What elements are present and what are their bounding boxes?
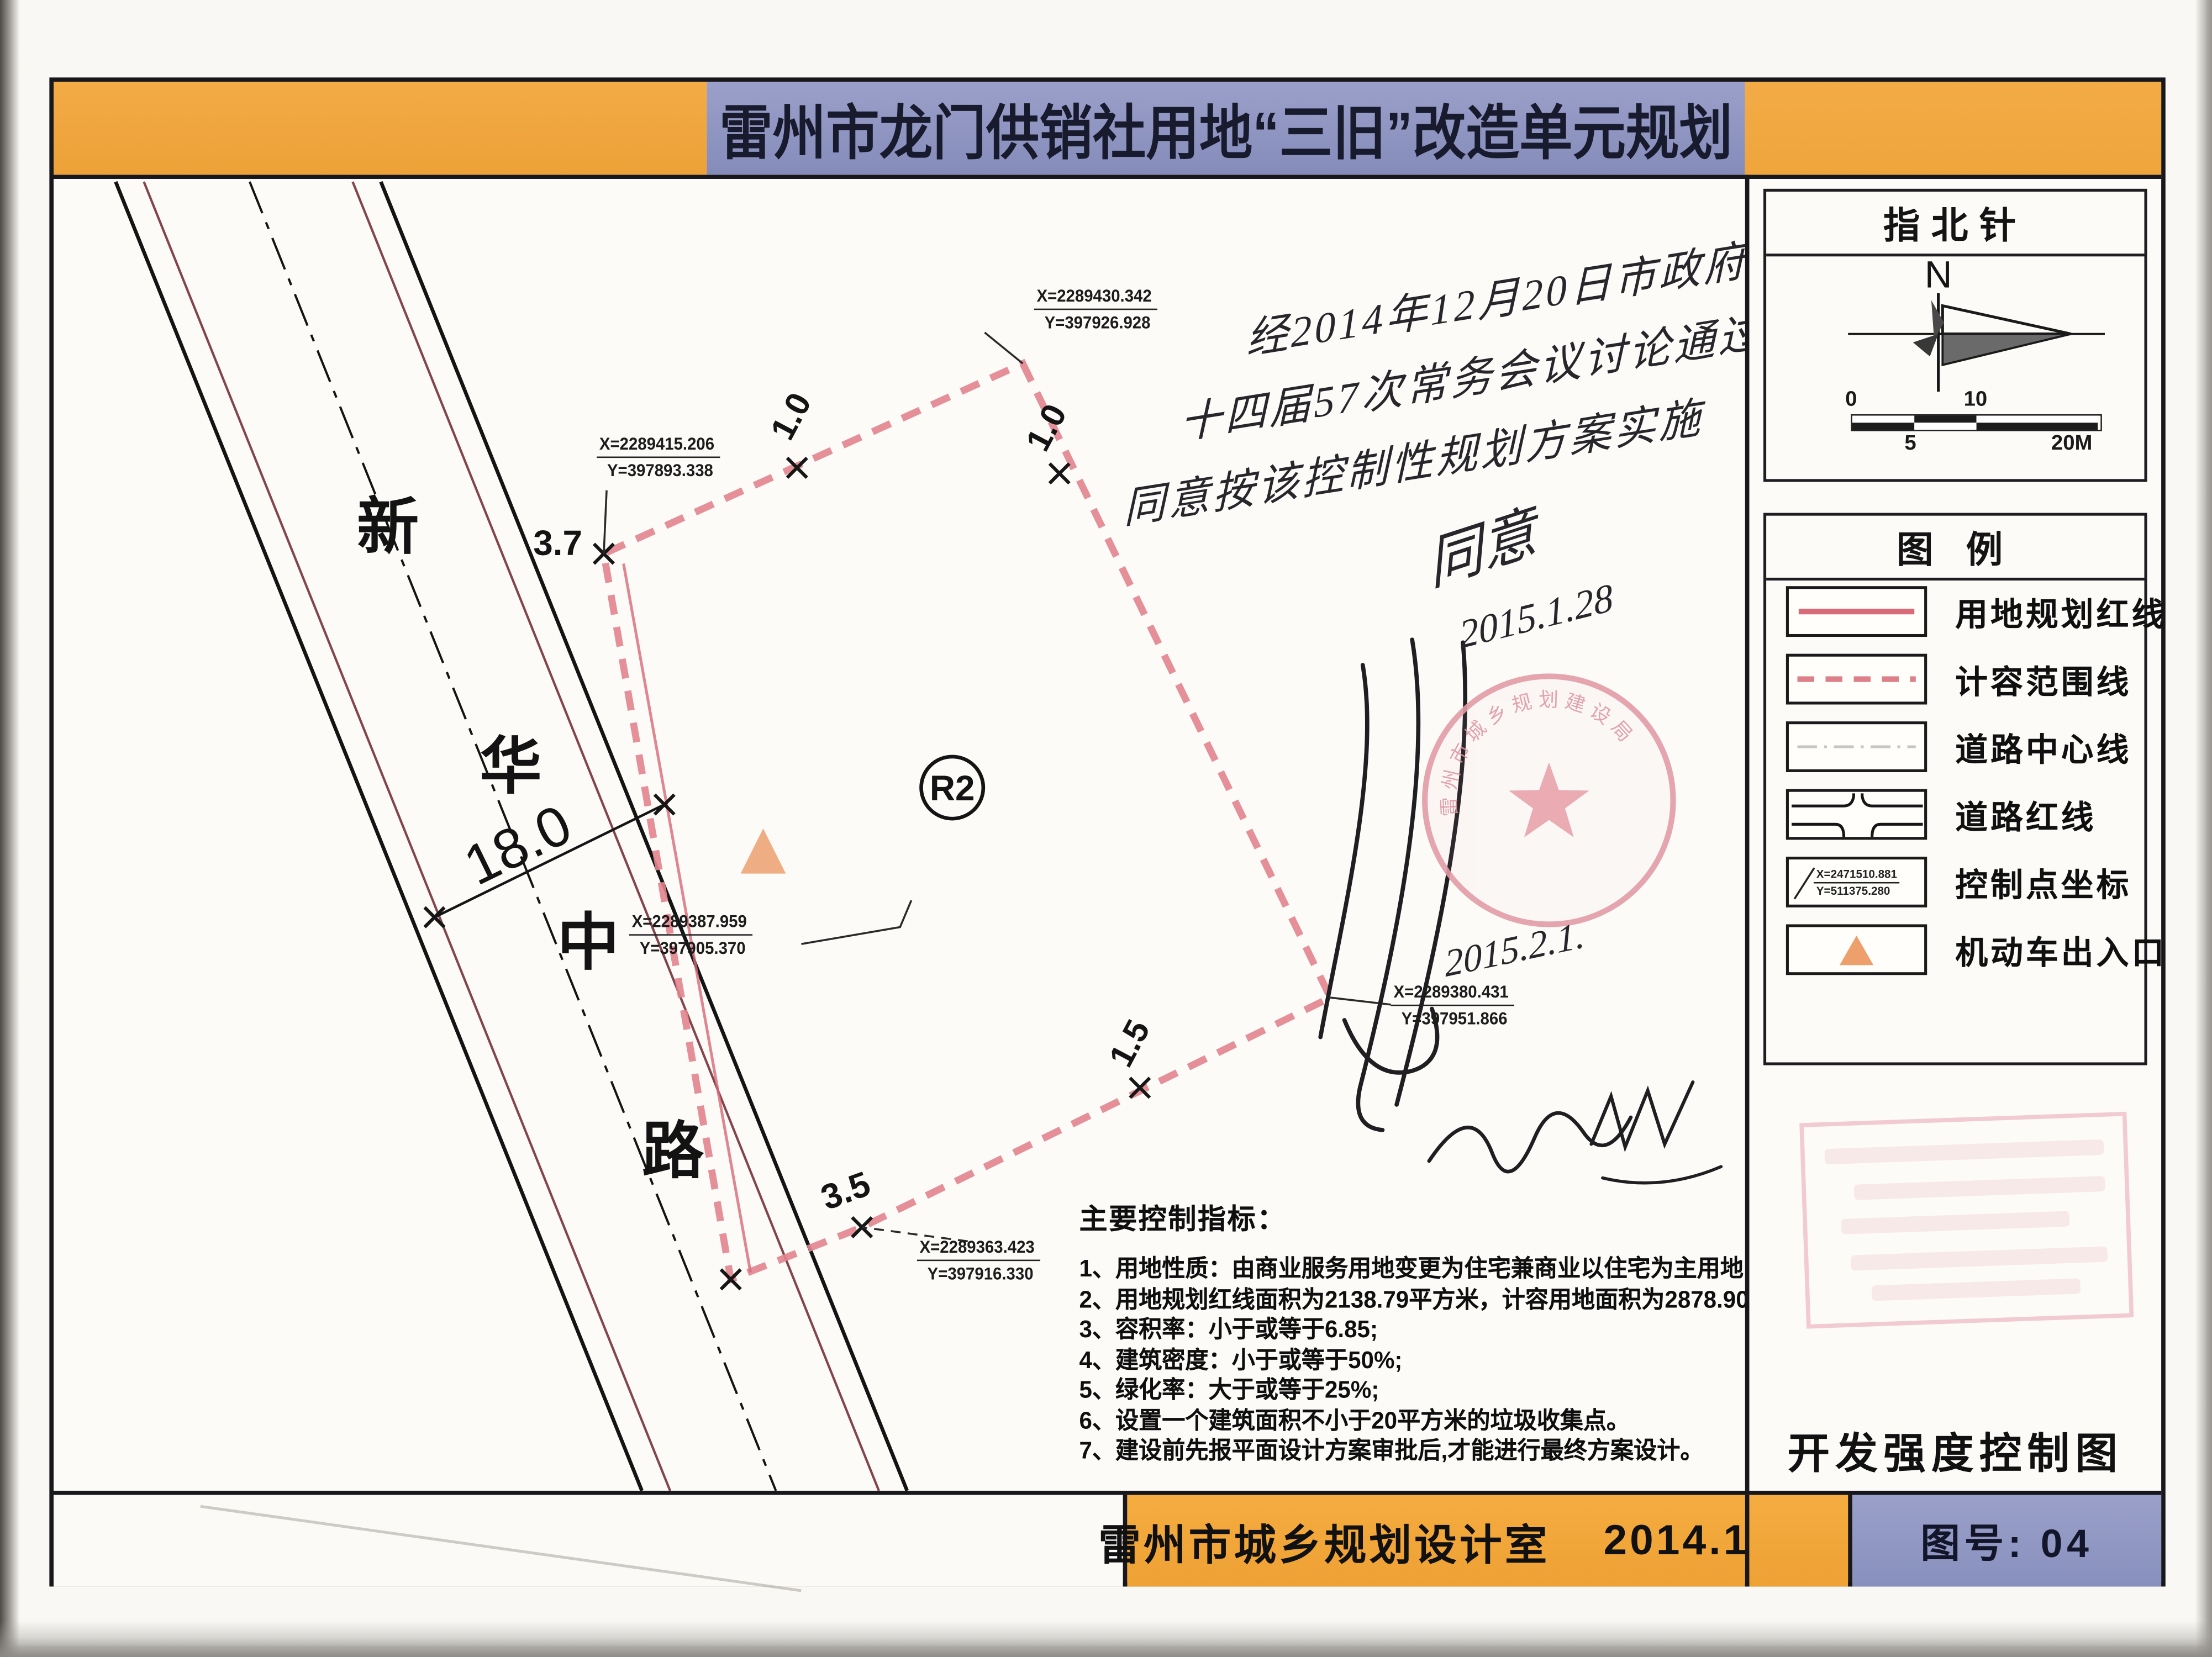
coord-label-left: X=2289415.206 Y=397893.338	[597, 432, 719, 483]
legend-item-road-centerline: 道路中心线	[1766, 713, 2144, 780]
coord-center-x: X=2289387.959	[629, 910, 752, 936]
coord-label-right: X=2289380.431 Y=397951.866	[1391, 980, 1514, 1031]
north-arrow-panel: 指北针 N 0 10 5 20M	[1763, 189, 2147, 482]
legend-coord-y: Y=511375.280	[1814, 883, 1900, 898]
coord-right-y: Y=397951.866	[1391, 1006, 1514, 1031]
redline-symbol-icon	[1786, 586, 1927, 637]
sheet-number: 图号: 04	[1920, 1512, 2093, 1569]
title-banner-orange-right	[1745, 82, 2161, 175]
indicator-item: 1、用地性质：由商业服务用地变更为住宅兼商业以住宅为主用地;	[1079, 1254, 1730, 1284]
credit-banner: 雷州市城乡规划设计室 2014.11	[1123, 1495, 1745, 1587]
survey-ticks	[425, 458, 1150, 1289]
coord-label-bottom: X=2289363.423 Y=397916.330	[917, 1236, 1040, 1286]
coord-left-x: X=2289415.206	[597, 432, 719, 458]
sheet-type-title: 开发强度控制图	[1749, 1419, 2161, 1481]
scale-10: 10	[1964, 388, 1988, 411]
legend-item-vehicle-entrance: 机动车出入口	[1766, 916, 2144, 983]
legend-header: 图 例	[1766, 516, 2144, 581]
coord-center-y: Y=397905.370	[629, 936, 752, 961]
zone-label-text: R2	[930, 768, 975, 808]
scale-0: 0	[1845, 388, 1857, 411]
indicator-item: 5、绿化率：大于或等于25%;	[1079, 1375, 1730, 1406]
road-name-char-2: 华	[480, 716, 541, 806]
scan-edge-bottom	[0, 1621, 2212, 1657]
sidebar: 指北针 N 0 10 5 20M	[1745, 175, 2161, 1491]
title-banner-orange-left	[54, 82, 707, 175]
entrance-triangle-icon	[1786, 924, 1927, 975]
coord-top-x: X=2289430.342	[1034, 284, 1157, 310]
vehicle-entrance-icon	[741, 828, 786, 874]
bottom-band: 雷州市城乡规划设计室 2014.11 图号: 04	[54, 1491, 2161, 1586]
legend-coord-x: X=2471510.881	[1814, 867, 1900, 883]
legend-label: 道路红线	[1955, 790, 2096, 838]
north-panel-header: 指北针	[1766, 192, 2144, 256]
legend-item-road-redline: 道路红线	[1766, 780, 2144, 848]
dim-3-5: 3.5	[816, 1164, 876, 1218]
road-width-dimension: 18.0	[435, 793, 665, 917]
zone-label: R2	[921, 757, 983, 819]
indicator-item: 3、容积率：小于或等于6.85;	[1079, 1315, 1730, 1345]
coord-bottom-x: X=2289363.423	[917, 1236, 1040, 1262]
legend-label: 控制点坐标	[1955, 858, 2131, 906]
centerline-symbol-icon	[1786, 721, 1927, 772]
north-arrow-icon: N	[1766, 254, 2144, 394]
north-letter: N	[1925, 254, 1952, 295]
indicator-item: 7、建设前先报平面设计方案审批后,才能进行最终方案设计。	[1079, 1436, 1730, 1466]
scale-20m: 20M	[2051, 431, 2093, 455]
road-junction-symbol-icon	[1786, 789, 1927, 840]
coord-label-center: X=2289387.959 Y=397905.370	[629, 910, 752, 961]
title-banner-center: 雷州市龙门供销社用地“三旧”改造单元规划	[707, 82, 1745, 175]
legend-label: 机动车出入口	[1955, 926, 2167, 974]
dim-3-7: 3.7	[533, 523, 582, 563]
indicator-item: 4、建筑密度：小于或等于50%;	[1079, 1345, 1730, 1375]
control-indicators: 主要控制指标： 1、用地性质：由商业服务用地变更为住宅兼商业以住宅为主用地; 2…	[1079, 1196, 1745, 1466]
indicator-item: 2、用地规划红线面积为2138.79平方米，计容用地面积为2878.90平方米;	[1079, 1284, 1730, 1315]
scan-edge-left	[0, 0, 20, 1657]
road-width-label: 18.0	[455, 793, 581, 897]
coord-bottom-y: Y=397916.330	[917, 1262, 1040, 1286]
title-banner: 雷州市龙门供销社用地“三旧”改造单元规划	[54, 82, 2161, 179]
indicators-heading: 主要控制指标：	[1079, 1196, 1745, 1237]
legend-label: 计容范围线	[1955, 655, 2131, 703]
sheet-number-banner: 图号: 04	[1848, 1495, 2161, 1587]
scale-5: 5	[1904, 431, 1916, 455]
legend-label: 用地规划红线	[1955, 588, 2167, 636]
legend-panel: 图 例 用地规划红线 计容范围线 道路中心线	[1763, 513, 2147, 1065]
faint-stamp-imprint	[1799, 1112, 2134, 1329]
dim-1-5: 1.5	[1102, 1014, 1157, 1073]
road-name-char-3: 中	[557, 892, 619, 982]
road-name-char-4: 路	[642, 1100, 704, 1190]
coord-top-y: Y=397926.928	[1034, 310, 1157, 335]
scanned-planning-sheet: 雷州市龙门供销社用地“三旧”改造单元规划	[0, 0, 2212, 1657]
dashed-line-symbol-icon	[1786, 654, 1927, 705]
legend-item-redline: 用地规划红线	[1766, 578, 2144, 645]
dim-1-0a: 1.0	[763, 387, 818, 446]
indicator-item: 6、设置一个建筑面积不小于20平方米的垃圾收集点。	[1079, 1406, 1730, 1436]
bottom-band-orange-block	[1745, 1495, 1848, 1587]
coord-label-top: X=2289430.342 Y=397926.928	[1034, 284, 1157, 335]
dim-1-0b: 1.0	[1019, 398, 1074, 457]
drawing-frame: 雷州市龙门供销社用地“三旧”改造单元规划	[49, 77, 2165, 1586]
road-name-char-1: 新	[357, 476, 419, 566]
plan-map: 18.0 3.7 1.0 1.0 1.5 3.5	[54, 175, 1745, 1491]
legend-item-far-boundary: 计容范围线	[1766, 645, 2144, 713]
legend-label: 道路中心线	[1955, 723, 2131, 771]
design-office-credit: 雷州市城乡规划设计室	[1098, 1510, 1550, 1571]
scan-edge-right	[2195, 0, 2212, 1657]
legend-item-control-point: X=2471510.881 Y=511375.280 控制点坐标	[1766, 848, 2144, 916]
official-red-stamp: 雷州市城乡规划建设局	[1404, 655, 1694, 946]
coord-left-y: Y=397893.338	[597, 458, 719, 483]
control-point-symbol-icon: X=2471510.881 Y=511375.280	[1786, 857, 1927, 907]
page-title: 雷州市龙门供销社用地“三旧”改造单元规划	[719, 85, 1732, 171]
scale-bar: 0 10 5 20M	[1851, 414, 2102, 431]
